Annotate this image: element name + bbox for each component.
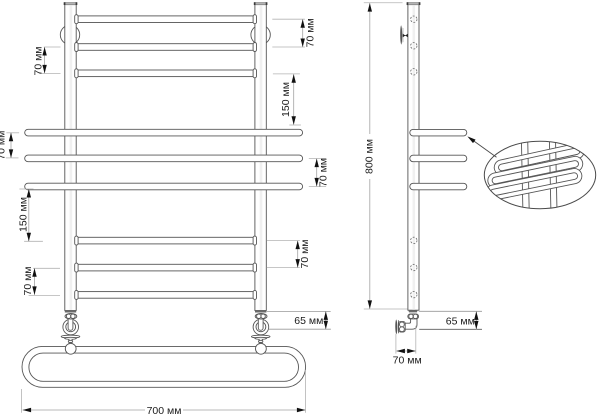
svg-text:70 мм: 70 мм bbox=[32, 46, 44, 75]
svg-text:70 мм: 70 мм bbox=[393, 354, 422, 366]
svg-text:700 мм: 700 мм bbox=[147, 405, 182, 415]
svg-text:65 мм: 65 мм bbox=[294, 315, 323, 327]
svg-text:70 мм: 70 мм bbox=[317, 158, 329, 187]
svg-text:70 мм: 70 мм bbox=[0, 131, 7, 160]
svg-text:70 мм: 70 мм bbox=[22, 266, 34, 295]
svg-text:150 мм: 150 мм bbox=[17, 197, 29, 232]
svg-text:150 мм: 150 мм bbox=[280, 82, 292, 117]
svg-text:65 мм: 65 мм bbox=[446, 316, 475, 328]
svg-text:800 мм: 800 мм bbox=[363, 139, 375, 174]
svg-text:70 мм: 70 мм bbox=[304, 18, 316, 47]
svg-text:70 мм: 70 мм bbox=[299, 239, 311, 268]
